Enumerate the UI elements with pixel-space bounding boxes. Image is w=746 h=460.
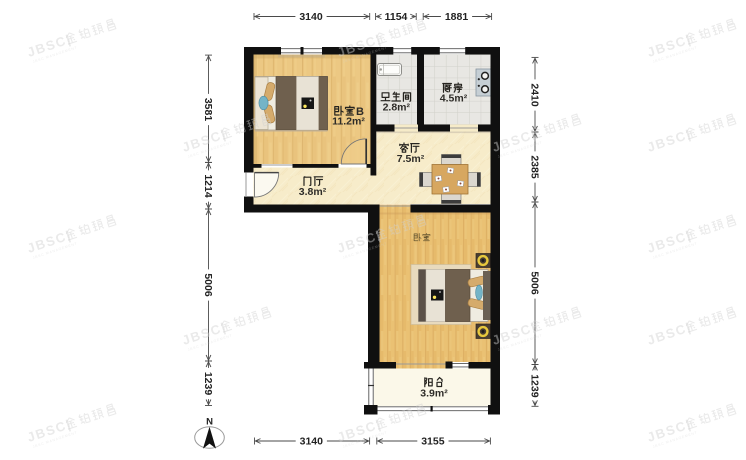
svg-text:7.5m²: 7.5m²: [397, 153, 425, 165]
svg-text:2.8m²: 2.8m²: [383, 102, 411, 114]
svg-text:5006: 5006: [202, 273, 214, 297]
svg-text:3.8m²: 3.8m²: [299, 186, 327, 198]
svg-text:11.2m²: 11.2m²: [332, 116, 365, 128]
svg-text:N: N: [206, 417, 213, 428]
svg-text:4.5m²: 4.5m²: [440, 92, 468, 104]
svg-text:5006: 5006: [528, 271, 540, 295]
svg-text:JBSC|: JBSC|: [645, 126, 693, 155]
svg-text:3155: 3155: [421, 436, 445, 448]
svg-text:1154: 1154: [385, 11, 408, 23]
svg-text:3581: 3581: [202, 98, 214, 122]
svg-text:JBSC|: JBSC|: [645, 319, 693, 348]
svg-text:3140: 3140: [300, 436, 324, 448]
svg-text:3.9m²: 3.9m²: [420, 388, 448, 400]
svg-text:1881: 1881: [445, 11, 469, 23]
svg-text:3140: 3140: [299, 11, 323, 23]
svg-text:2385: 2385: [528, 155, 540, 179]
svg-text:1239: 1239: [528, 374, 540, 398]
svg-text:1239: 1239: [202, 372, 214, 396]
svg-text:2410: 2410: [528, 83, 540, 107]
svg-text:1214: 1214: [202, 174, 214, 198]
